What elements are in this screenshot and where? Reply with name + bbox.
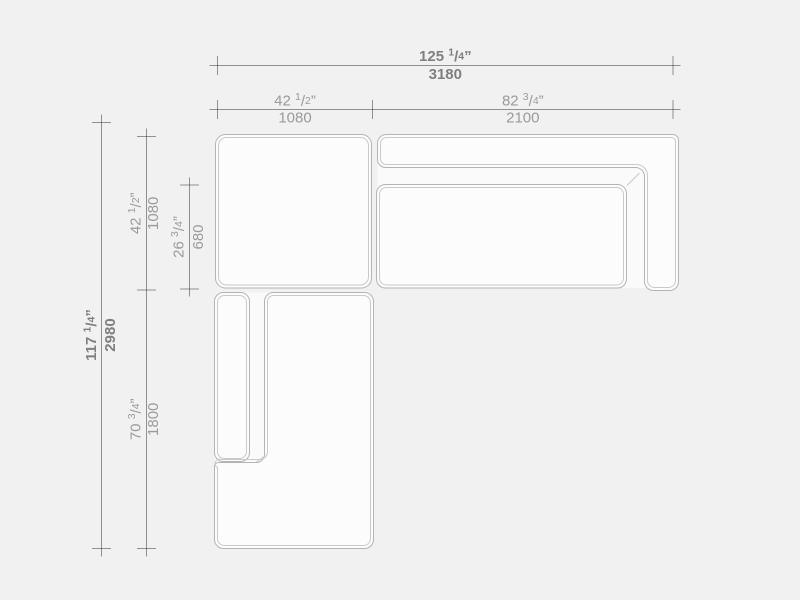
svg-text:1800: 1800	[145, 403, 162, 436]
svg-text:3180: 3180	[429, 66, 462, 83]
svg-text:1080: 1080	[145, 197, 162, 230]
svg-text:2980: 2980	[102, 318, 119, 351]
svg-text:680: 680	[190, 224, 207, 249]
svg-text:117 1/4”: 117 1/4”	[82, 309, 101, 361]
svg-text:1080: 1080	[278, 110, 311, 127]
svg-text:2100: 2100	[506, 110, 539, 127]
svg-text:125 1/4”: 125 1/4”	[419, 47, 472, 66]
